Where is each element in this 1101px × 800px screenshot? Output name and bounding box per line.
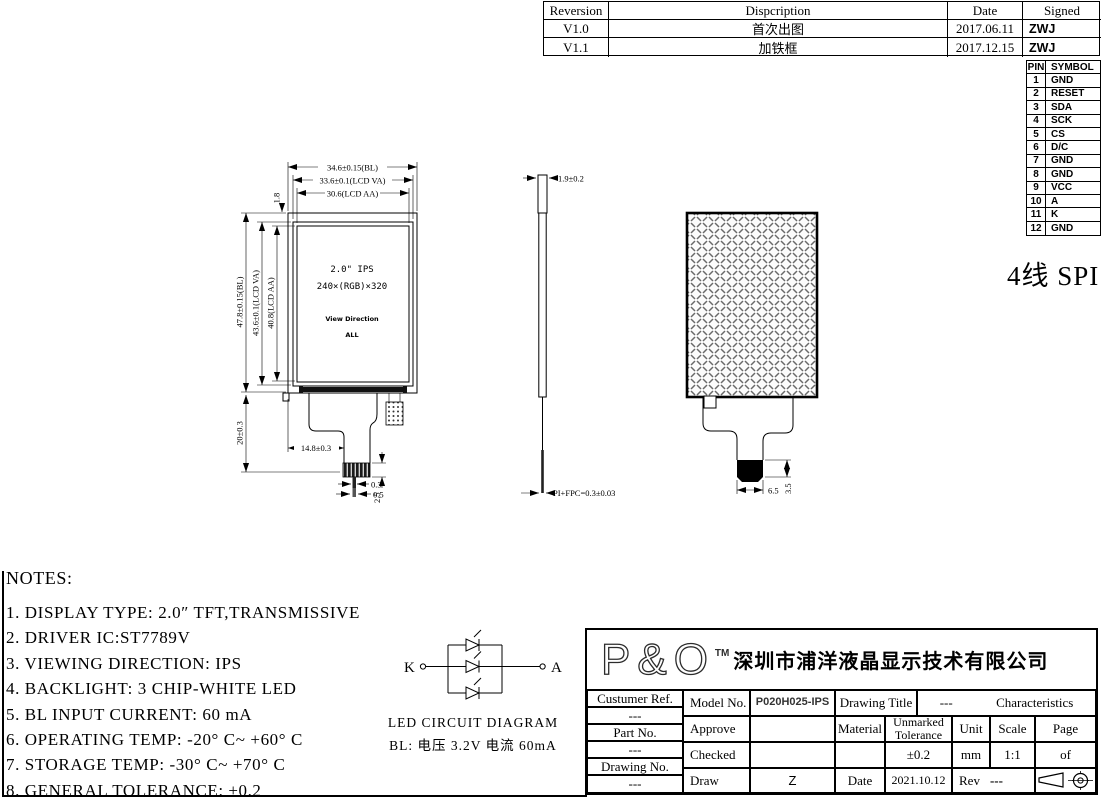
pin-number: 1: [1027, 74, 1046, 87]
pin-symbol: VCC: [1046, 182, 1100, 195]
strip-tab-left: [299, 386, 303, 394]
back-view: 6.5 3.5: [687, 213, 817, 496]
projection-symbol: [1037, 770, 1095, 792]
pin-number: 7: [1027, 155, 1046, 168]
view-direction-value: ALL: [345, 331, 358, 339]
dim-fpc-offset: 14.8±0.3: [301, 443, 331, 453]
dim-width-va: 33.6±0.1(LCD VA): [320, 176, 386, 186]
model-no-value: P020H025-IPS: [750, 690, 835, 716]
projection-symbols-cell: [1035, 768, 1096, 793]
side-body: [539, 213, 546, 397]
trademark-symbol: TM: [715, 648, 729, 659]
pin-table: PIN SYMBOL 1GND 2RESET 3SDA 4SCK 5CS 6D/…: [1026, 60, 1101, 236]
part-no-value: ---: [587, 741, 683, 758]
pin-symbol: GND: [1046, 168, 1100, 181]
dim-connector-h: 3.5: [783, 483, 793, 494]
fpc-connector-back: [737, 460, 763, 477]
note-item: 6. OPERATING TEMP: -20° C~ +60° C: [6, 727, 581, 752]
rev-row-date: 2017.06.11: [948, 20, 1023, 38]
sheet-border-left: [2, 571, 4, 797]
dim-width-aa: 30.6(LCD AA): [327, 189, 379, 199]
rev-header-reversion: Reversion: [544, 2, 609, 20]
view-direction-label: View Direction: [325, 315, 379, 323]
pin-number: 12: [1027, 222, 1046, 235]
front-outline-aa: [297, 226, 409, 382]
dim-fpc-len: 2.5: [372, 492, 382, 503]
dim-pi-fpc: PI+FPC=0.3±0.03: [553, 488, 615, 498]
pin-header: PIN: [1027, 61, 1046, 74]
pin-symbol: RESET: [1046, 88, 1100, 101]
pin-number: 10: [1027, 195, 1046, 208]
pin-number: 11: [1027, 208, 1046, 221]
front-width-dimensions: 34.6±0.15(BL) 33.6±0.1(LCD VA) 30.6(LCD …: [272, 162, 418, 213]
checked-label: Checked: [683, 742, 750, 768]
component-leads: [389, 393, 400, 402]
tolerance-value: ±0.2: [885, 742, 952, 768]
characteristics-label: Characteristics: [996, 696, 1073, 710]
date-value: 2021.10.12: [885, 768, 952, 793]
pin-symbol: A: [1046, 195, 1100, 208]
part-no-label: Part No.: [587, 724, 683, 741]
dim-height-aa: 40.8(LCD AA): [266, 277, 276, 329]
dim-bottom-offset: 20±0.3: [235, 421, 245, 445]
panel-resolution-label: 240×(RGB)×320: [317, 282, 387, 292]
dim-width-bl: 34.6±0.15(BL): [327, 163, 378, 173]
pin-symbol: D/C: [1046, 141, 1100, 154]
page-label: Page: [1035, 716, 1096, 742]
driver-ic-strip: [301, 387, 405, 392]
dim-top-offset: 1.8: [272, 193, 282, 204]
back-panel: [687, 213, 817, 397]
dim-fpc-w1: 0.3: [371, 480, 382, 490]
rev-row-description: 加铁框: [609, 38, 948, 57]
pin-number: 3: [1027, 101, 1046, 114]
pin-symbol: CS: [1046, 128, 1100, 141]
drawing-no-value: ---: [587, 775, 683, 793]
front-view: 2.0" IPS 240×(RGB)×320 View Direction AL…: [235, 0, 738, 503]
notes-title: NOTES:: [6, 568, 581, 589]
side-top-segment: [538, 175, 547, 213]
company-name: 深圳市浦洋液晶显示技术有限公司: [733, 645, 1048, 674]
date-label: Date: [835, 768, 885, 793]
rev-row-version: V1.1: [544, 38, 609, 57]
fpc-outline-right: [370, 393, 377, 463]
checked-value-cell: [750, 742, 835, 768]
rev-header-date: Date: [948, 2, 1023, 20]
connector-tip: [737, 477, 763, 482]
note-item: 2. DRIVER IC:ST7789V: [6, 625, 581, 650]
fpc-connector-front: [343, 463, 370, 477]
company-logo: P&OTM: [601, 638, 729, 682]
rev-row-version: V1.0: [544, 20, 609, 38]
pin-number: 6: [1027, 141, 1046, 154]
pin-number: 5: [1027, 128, 1046, 141]
draw-value: Z: [750, 768, 835, 793]
drawing-title-label: Drawing Title: [835, 690, 917, 716]
dim-connector-w: 6.5: [768, 486, 779, 496]
rev-label: Rev: [959, 774, 980, 788]
rev-row-date: 2017.12.15: [948, 38, 1023, 57]
fpc-tail-stiffener: [353, 477, 357, 488]
note-item: 3. VIEWING DIRECTION: IPS: [6, 651, 581, 676]
customer-ref-label: Custumer Ref.: [587, 690, 683, 707]
note-item: 5. BL INPUT CURRENT: 60 mA: [6, 702, 581, 727]
unit-value: mm: [952, 742, 990, 768]
revision-table: Reversion Dispcription Date Signed V1.0 …: [543, 1, 1100, 56]
side-view: 1.9±0.2 PI+FPC=0.3±0.03: [521, 174, 615, 499]
notes-section: NOTES: 1. DISPLAY TYPE: 2.0″ TFT,TRANSMI…: [6, 568, 581, 800]
rev-row-signed: ZWJ: [1023, 38, 1101, 57]
drawing-no-label: Drawing No.: [587, 758, 683, 775]
rev-cell: Rev ---: [952, 768, 1035, 793]
panel-size-label: 2.0" IPS: [330, 265, 373, 275]
material-label: Material: [835, 716, 885, 742]
sheet-border-bottom: [2, 795, 587, 797]
customer-ref-value: ---: [587, 707, 683, 724]
pin-symbol: GND: [1046, 74, 1100, 87]
pin-symbol: SCK: [1046, 115, 1100, 128]
note-item: 7. STORAGE TEMP: -30° C~ +70° C: [6, 752, 581, 777]
approve-value-cell: [750, 716, 835, 742]
interface-type-label: 4线 SPI: [1007, 254, 1099, 293]
drawing-title-value: ---: [940, 696, 953, 710]
rev-header-signed: Signed: [1023, 2, 1101, 20]
company-header: P&OTM 深圳市浦洋液晶显示技术有限公司: [587, 630, 1096, 690]
rev-row-description: 首次出图: [609, 20, 948, 38]
pin-number: 9: [1027, 182, 1046, 195]
strip-tab-right: [403, 386, 407, 394]
pin-number: 8: [1027, 168, 1046, 181]
dim-height-va: 43.6±0.1(LCD VA): [251, 270, 261, 336]
rev-row-signed: ZWJ: [1023, 20, 1101, 38]
unit-label: Unit: [952, 716, 990, 742]
dim-thickness: 1.9±0.2: [558, 174, 584, 184]
rev-value: ---: [990, 774, 1003, 788]
pin-symbol: GND: [1046, 155, 1100, 168]
pin-symbol: SDA: [1046, 101, 1100, 114]
title-block: P&OTM 深圳市浦洋液晶显示技术有限公司 Custumer Ref. --- …: [585, 628, 1098, 795]
note-item: 4. BACKLIGHT: 3 CHIP-WHITE LED: [6, 676, 581, 701]
fpc-component: [386, 402, 403, 425]
material-value-cell: [835, 742, 885, 768]
pin-symbol: GND: [1046, 222, 1100, 235]
dim-height-bl: 47.8±0.15(BL): [235, 276, 245, 327]
pin-number: 4: [1027, 115, 1046, 128]
scale-value: 1:1: [990, 742, 1035, 768]
front-outline-va: [293, 222, 413, 386]
pin-symbol: K: [1046, 208, 1100, 221]
front-extension-lines: [241, 0, 737, 477]
front-outline-bl: [288, 213, 417, 393]
draw-label: Draw: [683, 768, 750, 793]
unmarked-tolerance-label: Unmarked Tolerance: [885, 716, 952, 742]
approve-label: Approve: [683, 716, 750, 742]
symbol-header: SYMBOL: [1046, 61, 1100, 74]
model-no-label: Model No.: [683, 690, 750, 716]
scale-label: Scale: [990, 716, 1035, 742]
rev-header-description: Dispcription: [609, 2, 948, 20]
front-height-dimensions: 47.8±0.15(BL) 43.6±0.1(LCD VA) 40.8(LCD …: [235, 213, 278, 472]
back-notch: [704, 396, 716, 408]
page-value: of: [1035, 742, 1096, 768]
back-fpc-right: [763, 398, 793, 460]
pin-number: 2: [1027, 88, 1046, 101]
drawing-title-value-cell: --- Characteristics: [917, 690, 1096, 716]
note-item: 1. DISPLAY TYPE: 2.0″ TFT,TRANSMISSIVE: [6, 600, 581, 625]
